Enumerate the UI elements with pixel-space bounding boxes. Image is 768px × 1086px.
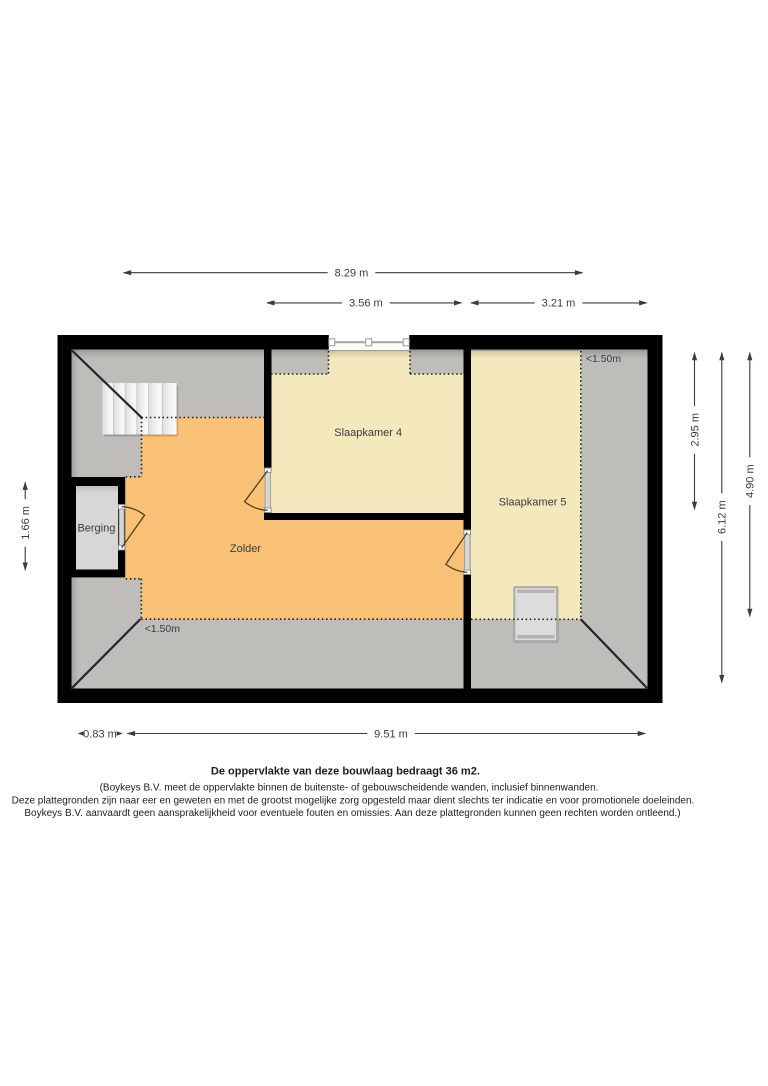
svg-text:Zolder: Zolder bbox=[230, 543, 262, 555]
svg-text:De oppervlakte van deze bouwla: De oppervlakte van deze bouwlaag bedraag… bbox=[211, 765, 480, 777]
svg-text:8.29 m: 8.29 m bbox=[335, 268, 369, 280]
svg-text:<1.50m: <1.50m bbox=[586, 353, 622, 365]
svg-text:9.51 m: 9.51 m bbox=[374, 728, 408, 740]
svg-text:3.56 m: 3.56 m bbox=[349, 298, 383, 310]
svg-text:4.90 m: 4.90 m bbox=[745, 464, 757, 498]
svg-text:2.95 m: 2.95 m bbox=[689, 413, 701, 447]
svg-text:0.83 m: 0.83 m bbox=[83, 728, 117, 740]
svg-text:3.21 m: 3.21 m bbox=[542, 298, 576, 310]
svg-text:<1.50m: <1.50m bbox=[145, 623, 181, 635]
svg-text:Slaapkamer 4: Slaapkamer 4 bbox=[334, 427, 402, 439]
svg-text:Boykeys B.V. aanvaardt geen aa: Boykeys B.V. aanvaardt geen aansprakelij… bbox=[24, 808, 680, 819]
svg-text:1.66 m: 1.66 m bbox=[20, 506, 32, 540]
svg-text:6.12 m: 6.12 m bbox=[717, 500, 729, 534]
svg-text:Deze plattegronden zijn naar e: Deze plattegronden zijn naar eer en gewe… bbox=[12, 795, 695, 806]
svg-text:Slaapkamer 5: Slaapkamer 5 bbox=[499, 496, 567, 508]
svg-text:Berging: Berging bbox=[77, 522, 115, 534]
svg-text:(Boykeys B.V. meet de oppervla: (Boykeys B.V. meet de oppervlakte binnen… bbox=[100, 783, 599, 794]
